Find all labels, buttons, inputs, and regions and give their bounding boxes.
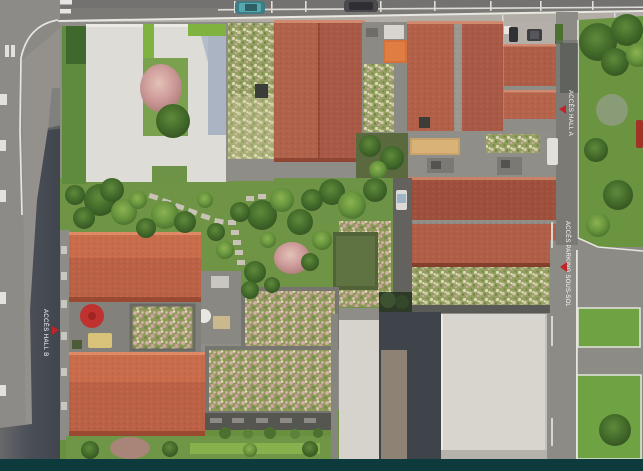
- svg-text:ACCÈS HALL A: ACCÈS HALL A: [567, 90, 574, 136]
- svg-text:ACCÈS HALL B: ACCÈS HALL B: [42, 309, 49, 357]
